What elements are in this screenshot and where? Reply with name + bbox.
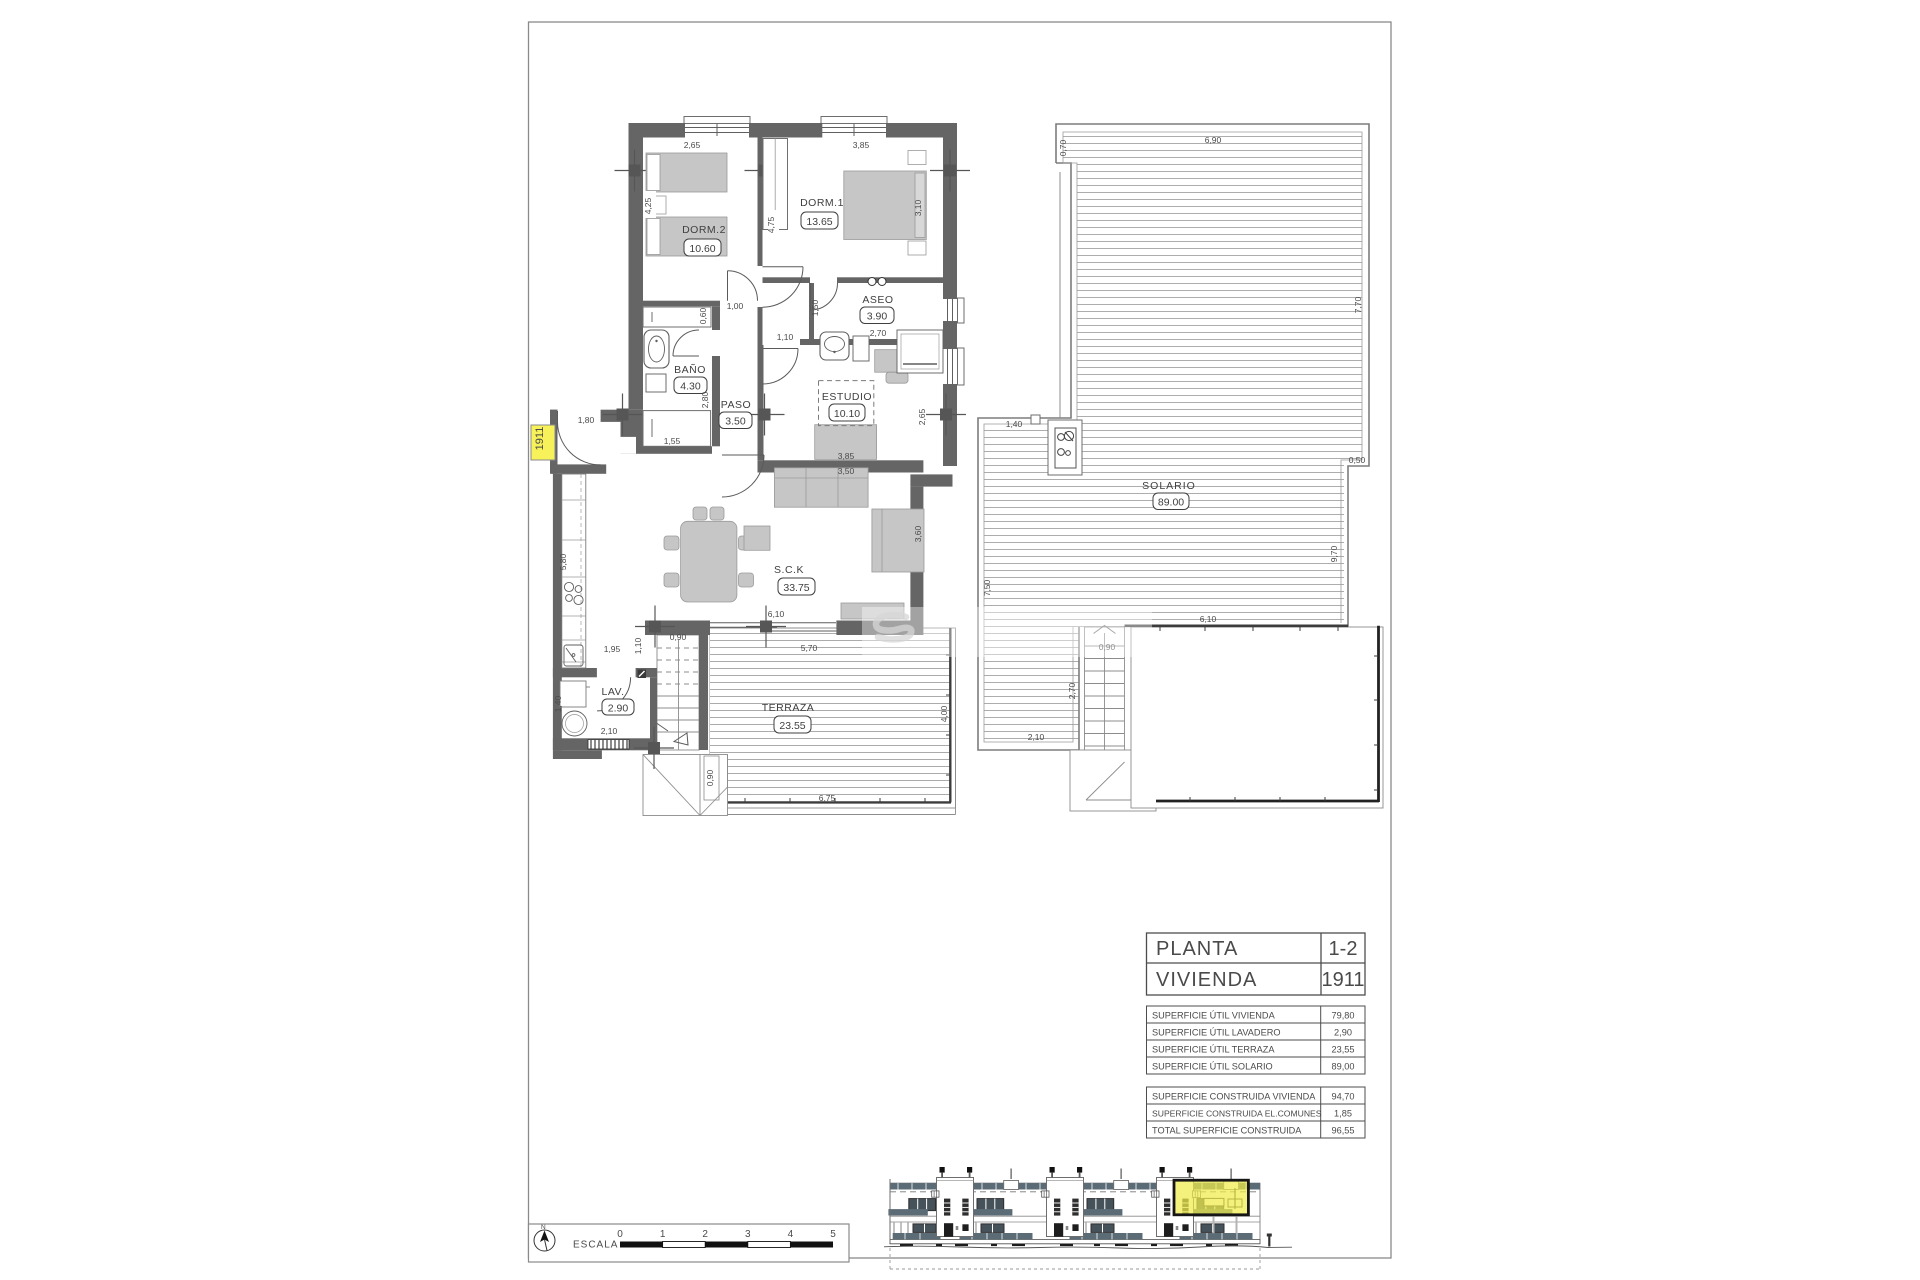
svg-text:2,10: 2,10 <box>1028 732 1045 742</box>
svg-text:1911: 1911 <box>1321 969 1364 991</box>
svg-text:2.90: 2.90 <box>608 703 629 715</box>
svg-text:2: 2 <box>702 1229 708 1240</box>
svg-text:1,10: 1,10 <box>633 637 643 654</box>
svg-text:6,75: 6,75 <box>819 793 836 803</box>
svg-text:89.00: 89.00 <box>1158 497 1184 509</box>
svg-text:4: 4 <box>788 1229 794 1240</box>
svg-text:ESTUDIO: ESTUDIO <box>822 391 872 403</box>
svg-text:0,70: 0,70 <box>1058 139 1068 156</box>
svg-text:3.90: 3.90 <box>867 311 888 323</box>
svg-text:DORM.2: DORM.2 <box>682 224 726 236</box>
svg-text:7,50: 7,50 <box>982 579 992 596</box>
svg-text:ASEO: ASEO <box>862 294 893 306</box>
svg-text:SOLARIO: SOLARIO <box>1142 480 1196 492</box>
svg-text:1,85: 1,85 <box>1334 1109 1352 1119</box>
svg-text:2,65: 2,65 <box>684 140 701 150</box>
svg-text:1911: 1911 <box>534 427 546 451</box>
svg-text:1,50: 1,50 <box>810 299 820 316</box>
svg-text:0,90: 0,90 <box>670 632 687 642</box>
svg-text:10.60: 10.60 <box>689 243 715 255</box>
svg-text:DORM.1: DORM.1 <box>800 197 844 209</box>
svg-text:6,90: 6,90 <box>1205 135 1222 145</box>
svg-text:3.50: 3.50 <box>725 416 746 428</box>
svg-text:1,55: 1,55 <box>664 436 681 446</box>
svg-text:1,10: 1,10 <box>777 332 794 342</box>
svg-text:1,40: 1,40 <box>553 695 563 712</box>
svg-text:23,55: 23,55 <box>1332 1045 1355 1055</box>
svg-text:6,10: 6,10 <box>1200 614 1217 624</box>
svg-text:VIVIENDA: VIVIENDA <box>1156 969 1257 991</box>
svg-text:3,85: 3,85 <box>838 451 855 461</box>
svg-text:PLANTA: PLANTA <box>1156 938 1238 960</box>
svg-text:ESCALA :: ESCALA : <box>573 1240 625 1251</box>
svg-text:13.65: 13.65 <box>806 216 832 228</box>
svg-text:1,95: 1,95 <box>604 644 621 654</box>
svg-text:0,60: 0,60 <box>698 307 708 324</box>
svg-text:0: 0 <box>617 1229 623 1240</box>
svg-text:N: N <box>541 1224 546 1231</box>
svg-text:10.10: 10.10 <box>834 408 860 420</box>
svg-text:S.C.K: S.C.K <box>774 564 804 576</box>
svg-text:5: 5 <box>830 1229 836 1240</box>
svg-text:SUPERFICIE CONSTRUIDA VIVIENDA: SUPERFICIE CONSTRUIDA VIVIENDA <box>1152 1092 1316 1102</box>
svg-text:23.55: 23.55 <box>779 720 805 732</box>
svg-text:2,90: 2,90 <box>1334 1028 1352 1038</box>
svg-text:5,80: 5,80 <box>558 553 568 570</box>
svg-text:BAÑO: BAÑO <box>674 363 706 376</box>
svg-text:89,00: 89,00 <box>1332 1062 1355 1072</box>
svg-text:SUPERFICIE ÚTIL SOLARIO: SUPERFICIE ÚTIL SOLARIO <box>1152 1062 1273 1072</box>
svg-text:2,70: 2,70 <box>1067 682 1077 699</box>
svg-text:79,80: 79,80 <box>1332 1011 1355 1021</box>
svg-text:1-2: 1-2 <box>1329 938 1358 960</box>
svg-text:4,75: 4,75 <box>766 216 776 233</box>
svg-text:TERRAZA: TERRAZA <box>762 702 815 714</box>
svg-text:SUPERFICIE ÚTIL LAVADERO: SUPERFICIE ÚTIL LAVADERO <box>1152 1028 1280 1038</box>
svg-text:3,85: 3,85 <box>853 140 870 150</box>
svg-text:7,70: 7,70 <box>1353 296 1363 313</box>
svg-text:SUPERFICIE CONSTRUIDA EL.COMUN: SUPERFICIE CONSTRUIDA EL.COMUNES <box>1152 1109 1322 1119</box>
svg-text:3,10: 3,10 <box>913 199 923 216</box>
svg-text:33.75: 33.75 <box>783 582 809 594</box>
svg-text:2,80: 2,80 <box>700 391 710 408</box>
svg-text:9,70: 9,70 <box>1329 545 1339 562</box>
svg-text:4,00: 4,00 <box>939 705 949 722</box>
svg-text:1,00: 1,00 <box>727 301 744 311</box>
svg-text:5,70: 5,70 <box>801 643 818 653</box>
svg-text:3,50: 3,50 <box>838 466 855 476</box>
svg-text:1: 1 <box>660 1229 666 1240</box>
svg-text:4.30: 4.30 <box>680 381 701 393</box>
svg-text:SUPERFICIE ÚTIL VIVIENDA: SUPERFICIE ÚTIL VIVIENDA <box>1152 1011 1276 1021</box>
svg-text:2,70: 2,70 <box>870 328 887 338</box>
svg-text:0,50: 0,50 <box>1349 455 1366 465</box>
svg-text:2,65: 2,65 <box>917 408 927 425</box>
svg-text:2,10: 2,10 <box>601 726 618 736</box>
svg-text:6,10: 6,10 <box>768 609 785 619</box>
svg-text:PASO: PASO <box>721 399 751 411</box>
svg-text:1,80: 1,80 <box>578 415 595 425</box>
svg-text:4,25: 4,25 <box>643 197 653 214</box>
svg-text:0,90: 0,90 <box>705 769 715 786</box>
svg-text:3: 3 <box>745 1229 751 1240</box>
svg-text:96,55: 96,55 <box>1332 1126 1355 1136</box>
svg-text:1,40: 1,40 <box>1006 419 1023 429</box>
svg-text:LAV.: LAV. <box>601 686 624 698</box>
svg-text:94,70: 94,70 <box>1332 1092 1355 1102</box>
svg-text:3,60: 3,60 <box>913 525 923 542</box>
svg-text:TOTAL SUPERFICIE CONSTRUIDA: TOTAL SUPERFICIE CONSTRUIDA <box>1152 1126 1302 1136</box>
svg-text:SUPERFICIE ÚTIL TERRAZA: SUPERFICIE ÚTIL TERRAZA <box>1152 1045 1275 1055</box>
